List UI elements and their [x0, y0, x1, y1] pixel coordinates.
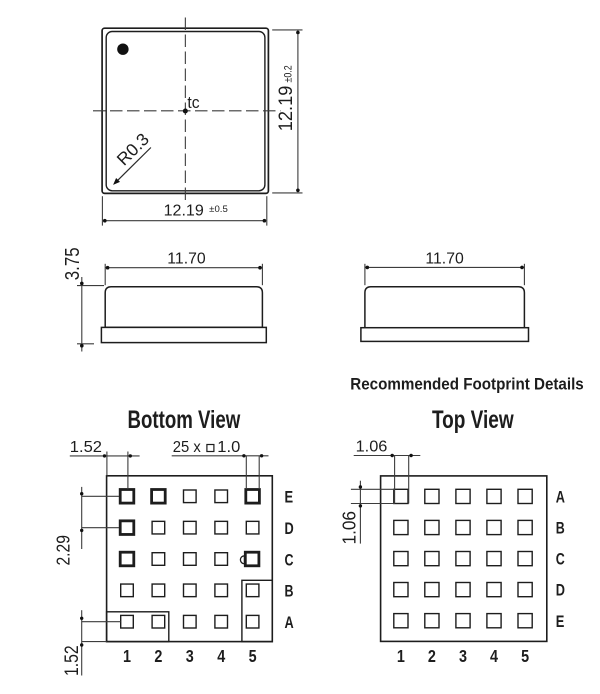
- svg-text:1.06: 1.06: [356, 439, 388, 456]
- svg-text:1.06: 1.06: [339, 511, 359, 545]
- svg-text:D: D: [556, 581, 565, 600]
- svg-text:C: C: [556, 550, 565, 569]
- svg-text:E: E: [285, 488, 294, 507]
- svg-text:B: B: [285, 582, 294, 601]
- svg-text:11.70: 11.70: [167, 251, 205, 268]
- svg-text:Top View: Top View: [432, 406, 514, 434]
- svg-text:3: 3: [186, 646, 194, 666]
- svg-text:±0.2: ±0.2: [282, 65, 294, 82]
- svg-text:±0.5: ±0.5: [209, 204, 228, 215]
- svg-text:12.19: 12.19: [276, 86, 297, 132]
- svg-text:2: 2: [428, 646, 436, 666]
- svg-text:E: E: [556, 612, 565, 631]
- svg-text:1.52: 1.52: [70, 439, 102, 456]
- svg-text:1: 1: [397, 646, 405, 666]
- svg-text:11.70: 11.70: [425, 251, 463, 268]
- svg-text:1: 1: [123, 646, 131, 666]
- svg-text:1.0: 1.0: [217, 439, 240, 456]
- svg-text:12.19: 12.19: [164, 202, 204, 219]
- svg-text:B: B: [556, 519, 565, 538]
- svg-text:4: 4: [490, 646, 498, 666]
- svg-text:A: A: [285, 613, 294, 632]
- svg-text:3: 3: [459, 646, 467, 666]
- svg-text:2: 2: [154, 646, 162, 666]
- svg-text:tc: tc: [187, 93, 200, 112]
- svg-text:2.29: 2.29: [53, 535, 73, 565]
- svg-text:3.75: 3.75: [62, 247, 84, 280]
- svg-text:Bottom View: Bottom View: [128, 406, 241, 434]
- svg-text:25 x: 25 x: [173, 439, 201, 456]
- svg-text:A: A: [556, 488, 565, 507]
- svg-text:5: 5: [249, 646, 257, 666]
- svg-text:5: 5: [521, 646, 529, 666]
- svg-text:4: 4: [217, 646, 225, 666]
- svg-text:Recommended Footprint Details: Recommended Footprint Details: [350, 375, 584, 393]
- svg-text:D: D: [285, 519, 294, 538]
- svg-text:1.52: 1.52: [62, 645, 83, 676]
- svg-text:C: C: [285, 550, 294, 569]
